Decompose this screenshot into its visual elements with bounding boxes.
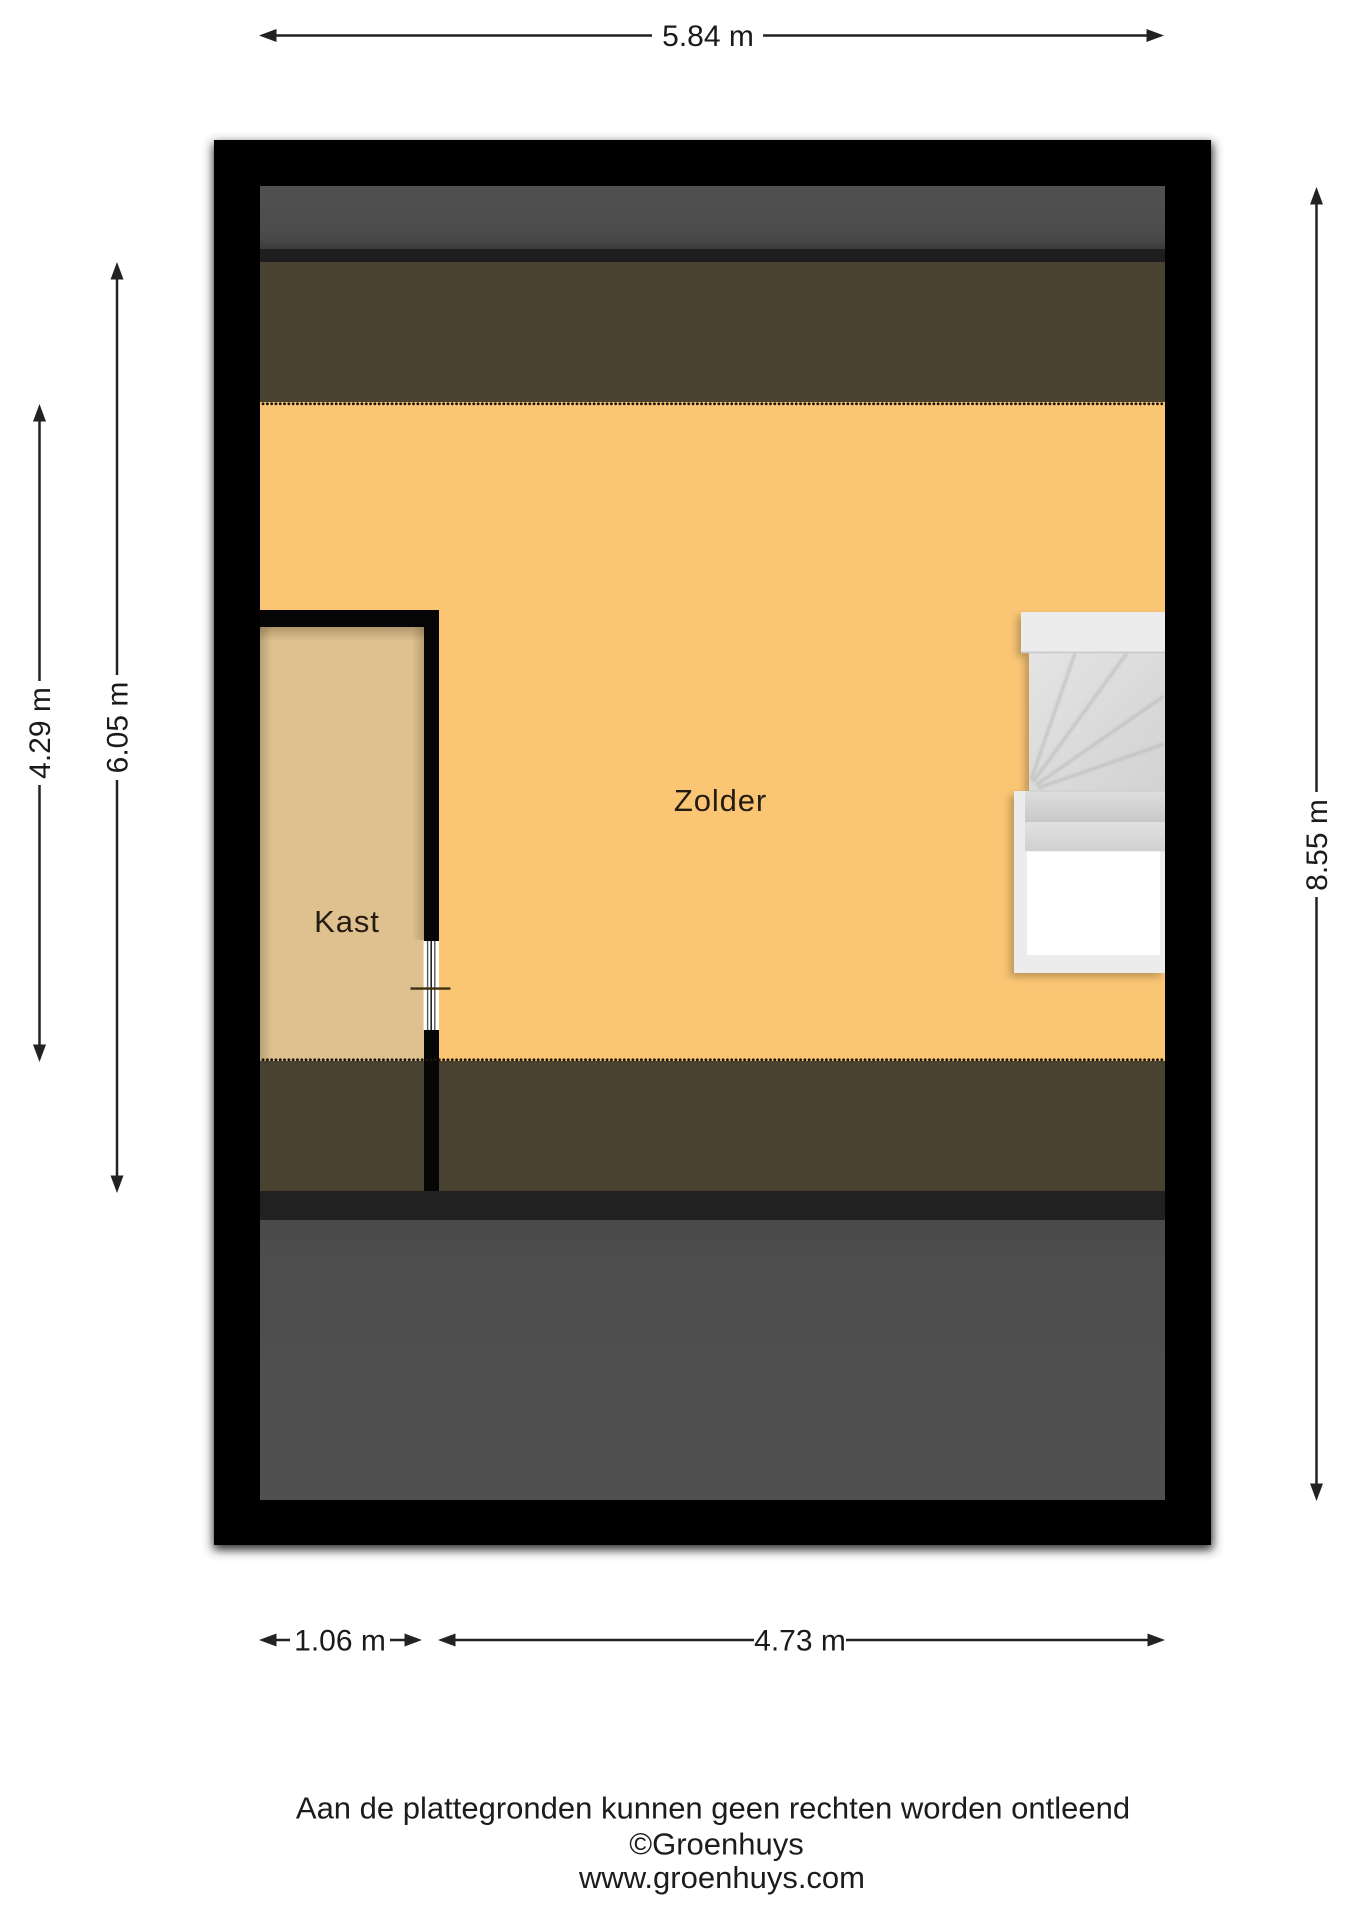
svg-text:4.29 m: 4.29 m (24, 687, 57, 779)
svg-text:©Groenhuys: ©Groenhuys (629, 1827, 803, 1862)
svg-text:1.06 m: 1.06 m (294, 1625, 386, 1658)
svg-text:Zolder: Zolder (674, 783, 767, 818)
svg-text:Aan de plattegronden kunnen ge: Aan de plattegronden kunnen geen rechten… (296, 1791, 1130, 1826)
svg-text:6.05 m: 6.05 m (102, 682, 135, 774)
svg-text:5.84 m: 5.84 m (662, 20, 754, 53)
svg-text:8.55 m: 8.55 m (1301, 799, 1334, 891)
svg-text:4.73 m: 4.73 m (754, 1625, 846, 1658)
svg-text:www.groenhuys.com: www.groenhuys.com (578, 1860, 865, 1895)
svg-text:Kast: Kast (314, 904, 380, 939)
